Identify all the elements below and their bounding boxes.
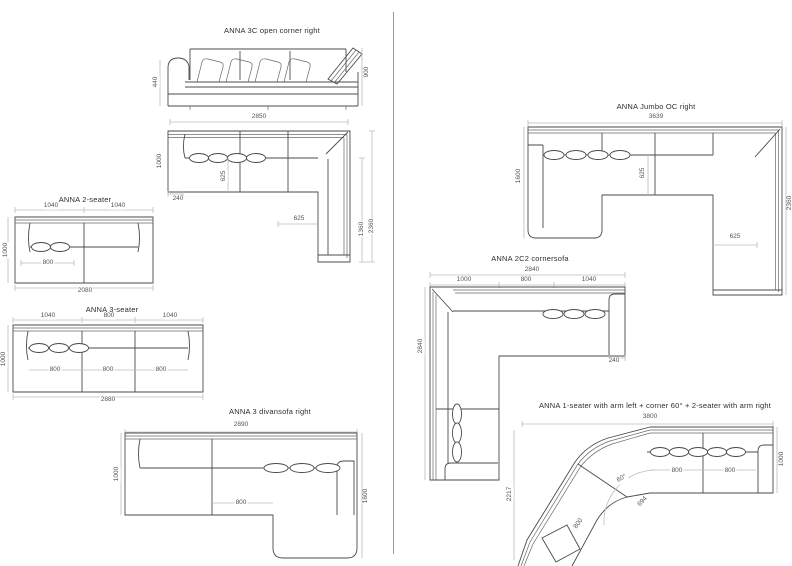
dim-width-top: 2840 [524,267,540,274]
spec-sheet-canvas: ANNA 3C open corner right [0,0,792,566]
dim-seat-depth: 625 [221,170,228,183]
diagram-anna-3c-open-corner-right: ANNA 3C open corner right [150,22,395,290]
dim-seat-width: 800 [235,500,248,507]
dim-top-1: 800 [103,313,116,320]
diagram-anna-corner-60-combo: ANNA 1-seater with arm left + corner 60°… [505,400,792,566]
dim-right-inner: 1360 [359,221,366,237]
sofa-3c-drawing [150,22,395,290]
dim-depth-left: 2840 [418,338,425,354]
dim-depth-left: 1600 [516,168,523,184]
dim-seat-2: 800 [155,367,168,374]
sofa-divansofa-drawing [110,405,390,565]
dim-width-top: 3639 [648,114,664,121]
dim-depth-left: 1000 [1,351,8,367]
sofa-3-seater-drawing [0,305,215,410]
dim-right-depth: 1600 [363,488,370,504]
dim-right-total: 2360 [369,218,376,234]
diagram-anna-2-seater: ANNA 2-seater 1040 1040 1000 800 2080 [0,195,185,300]
dim-depth-left: 1000 [114,466,121,482]
dim-corner-seat: 625 [729,234,742,241]
dim-depth-left: 1000 [157,153,164,169]
dim-top-0: 1040 [40,313,56,320]
dim-arm-width: 240 [608,358,621,365]
diagram-anna-3-seater: ANNA 3-seater 1040 800 1040 1000 800 800… [0,305,215,410]
sofa-2-seater-drawing [0,195,185,300]
dim-seat-0: 800 [49,367,62,374]
dim-top-1: 1040 [110,203,126,210]
dim-seat-depth: 625 [640,167,647,180]
sofa-corner-60-drawing [505,400,792,566]
dim-right-total: 2360 [787,195,792,211]
dim-top-2: 1040 [581,277,597,284]
dim-width-top: 2850 [251,114,267,121]
dim-seat-1: 800 [724,468,737,475]
dim-width-bottom: 2880 [100,397,116,404]
dim-top-0: 1040 [43,203,59,210]
dim-elev-height-right: 900 [364,66,371,79]
dim-top-1: 800 [520,277,533,284]
dim-top-2: 1040 [162,313,178,320]
dim-right-depth: 1000 [779,451,786,467]
diagram-anna-3-divansofa-right: ANNA 3 divansofa right 2890 1000 800 160… [110,405,390,565]
dim-depth-left: 1000 [3,242,10,258]
dim-corner-seat: 625 [293,216,306,223]
dim-width-bottom: 2080 [77,288,93,295]
dim-elev-height-left: 440 [153,76,160,89]
dim-top-0: 1000 [456,277,472,284]
dim-width-top: 2890 [233,422,249,429]
dim-seat-0: 800 [671,468,684,475]
dim-width-top: 3800 [642,414,658,421]
dim-left-depth: 2217 [507,486,514,502]
dim-seat-1: 800 [102,367,115,374]
dim-seat-width: 800 [42,260,55,267]
